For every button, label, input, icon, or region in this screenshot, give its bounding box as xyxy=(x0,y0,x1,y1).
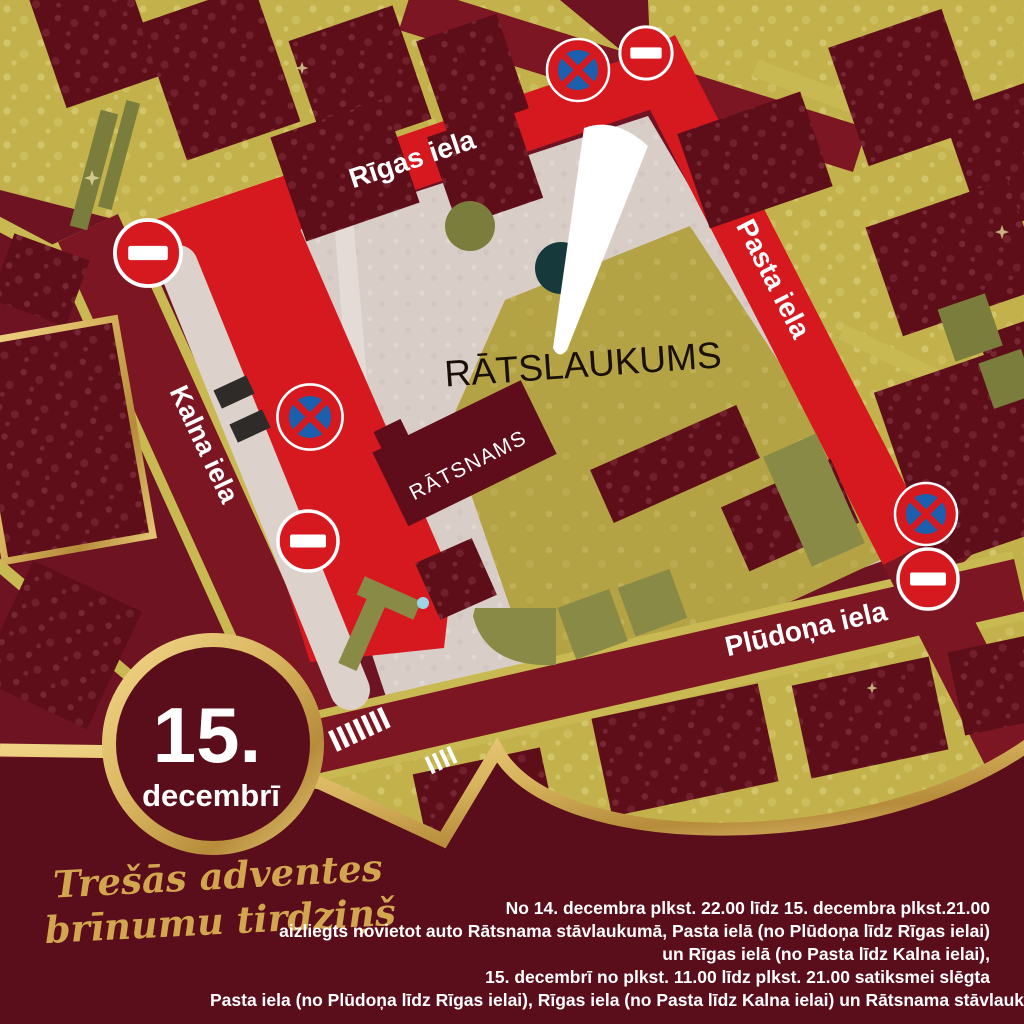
no-entry-sign xyxy=(115,220,181,286)
no-entry-sign xyxy=(620,27,672,79)
tree-circle xyxy=(445,201,495,251)
notice-line: No 14. decembra plkst. 22.00 līdz 15. de… xyxy=(210,897,990,920)
notice-line: aizliegts novietot auto Rātsnama stāvlau… xyxy=(210,920,990,943)
no-stopping-sign xyxy=(895,483,957,545)
traffic-notice: No 14. decembra plkst. 22.00 līdz 15. de… xyxy=(210,897,990,1012)
badge-day: 15. xyxy=(153,691,261,779)
fountain-dot xyxy=(417,597,429,609)
no-stopping-sign xyxy=(547,39,609,101)
no-entry-sign xyxy=(278,511,338,571)
notice-line: un Rīgas ielā (no Pasta līdz Kalna ielai… xyxy=(210,943,990,966)
event-poster: Rīgas iela Pasta iela Kalna iela Plūdoņa… xyxy=(0,0,1024,1024)
notice-line: Pasta iela (no Plūdoņa līdz Rīgas ielai)… xyxy=(210,989,990,1012)
no-entry-sign xyxy=(898,549,958,609)
no-stopping-sign xyxy=(277,384,342,449)
badge-month: decembrī xyxy=(142,778,280,813)
notice-line: 15. decembrī no plkst. 11.00 līdz plkst.… xyxy=(210,966,990,989)
